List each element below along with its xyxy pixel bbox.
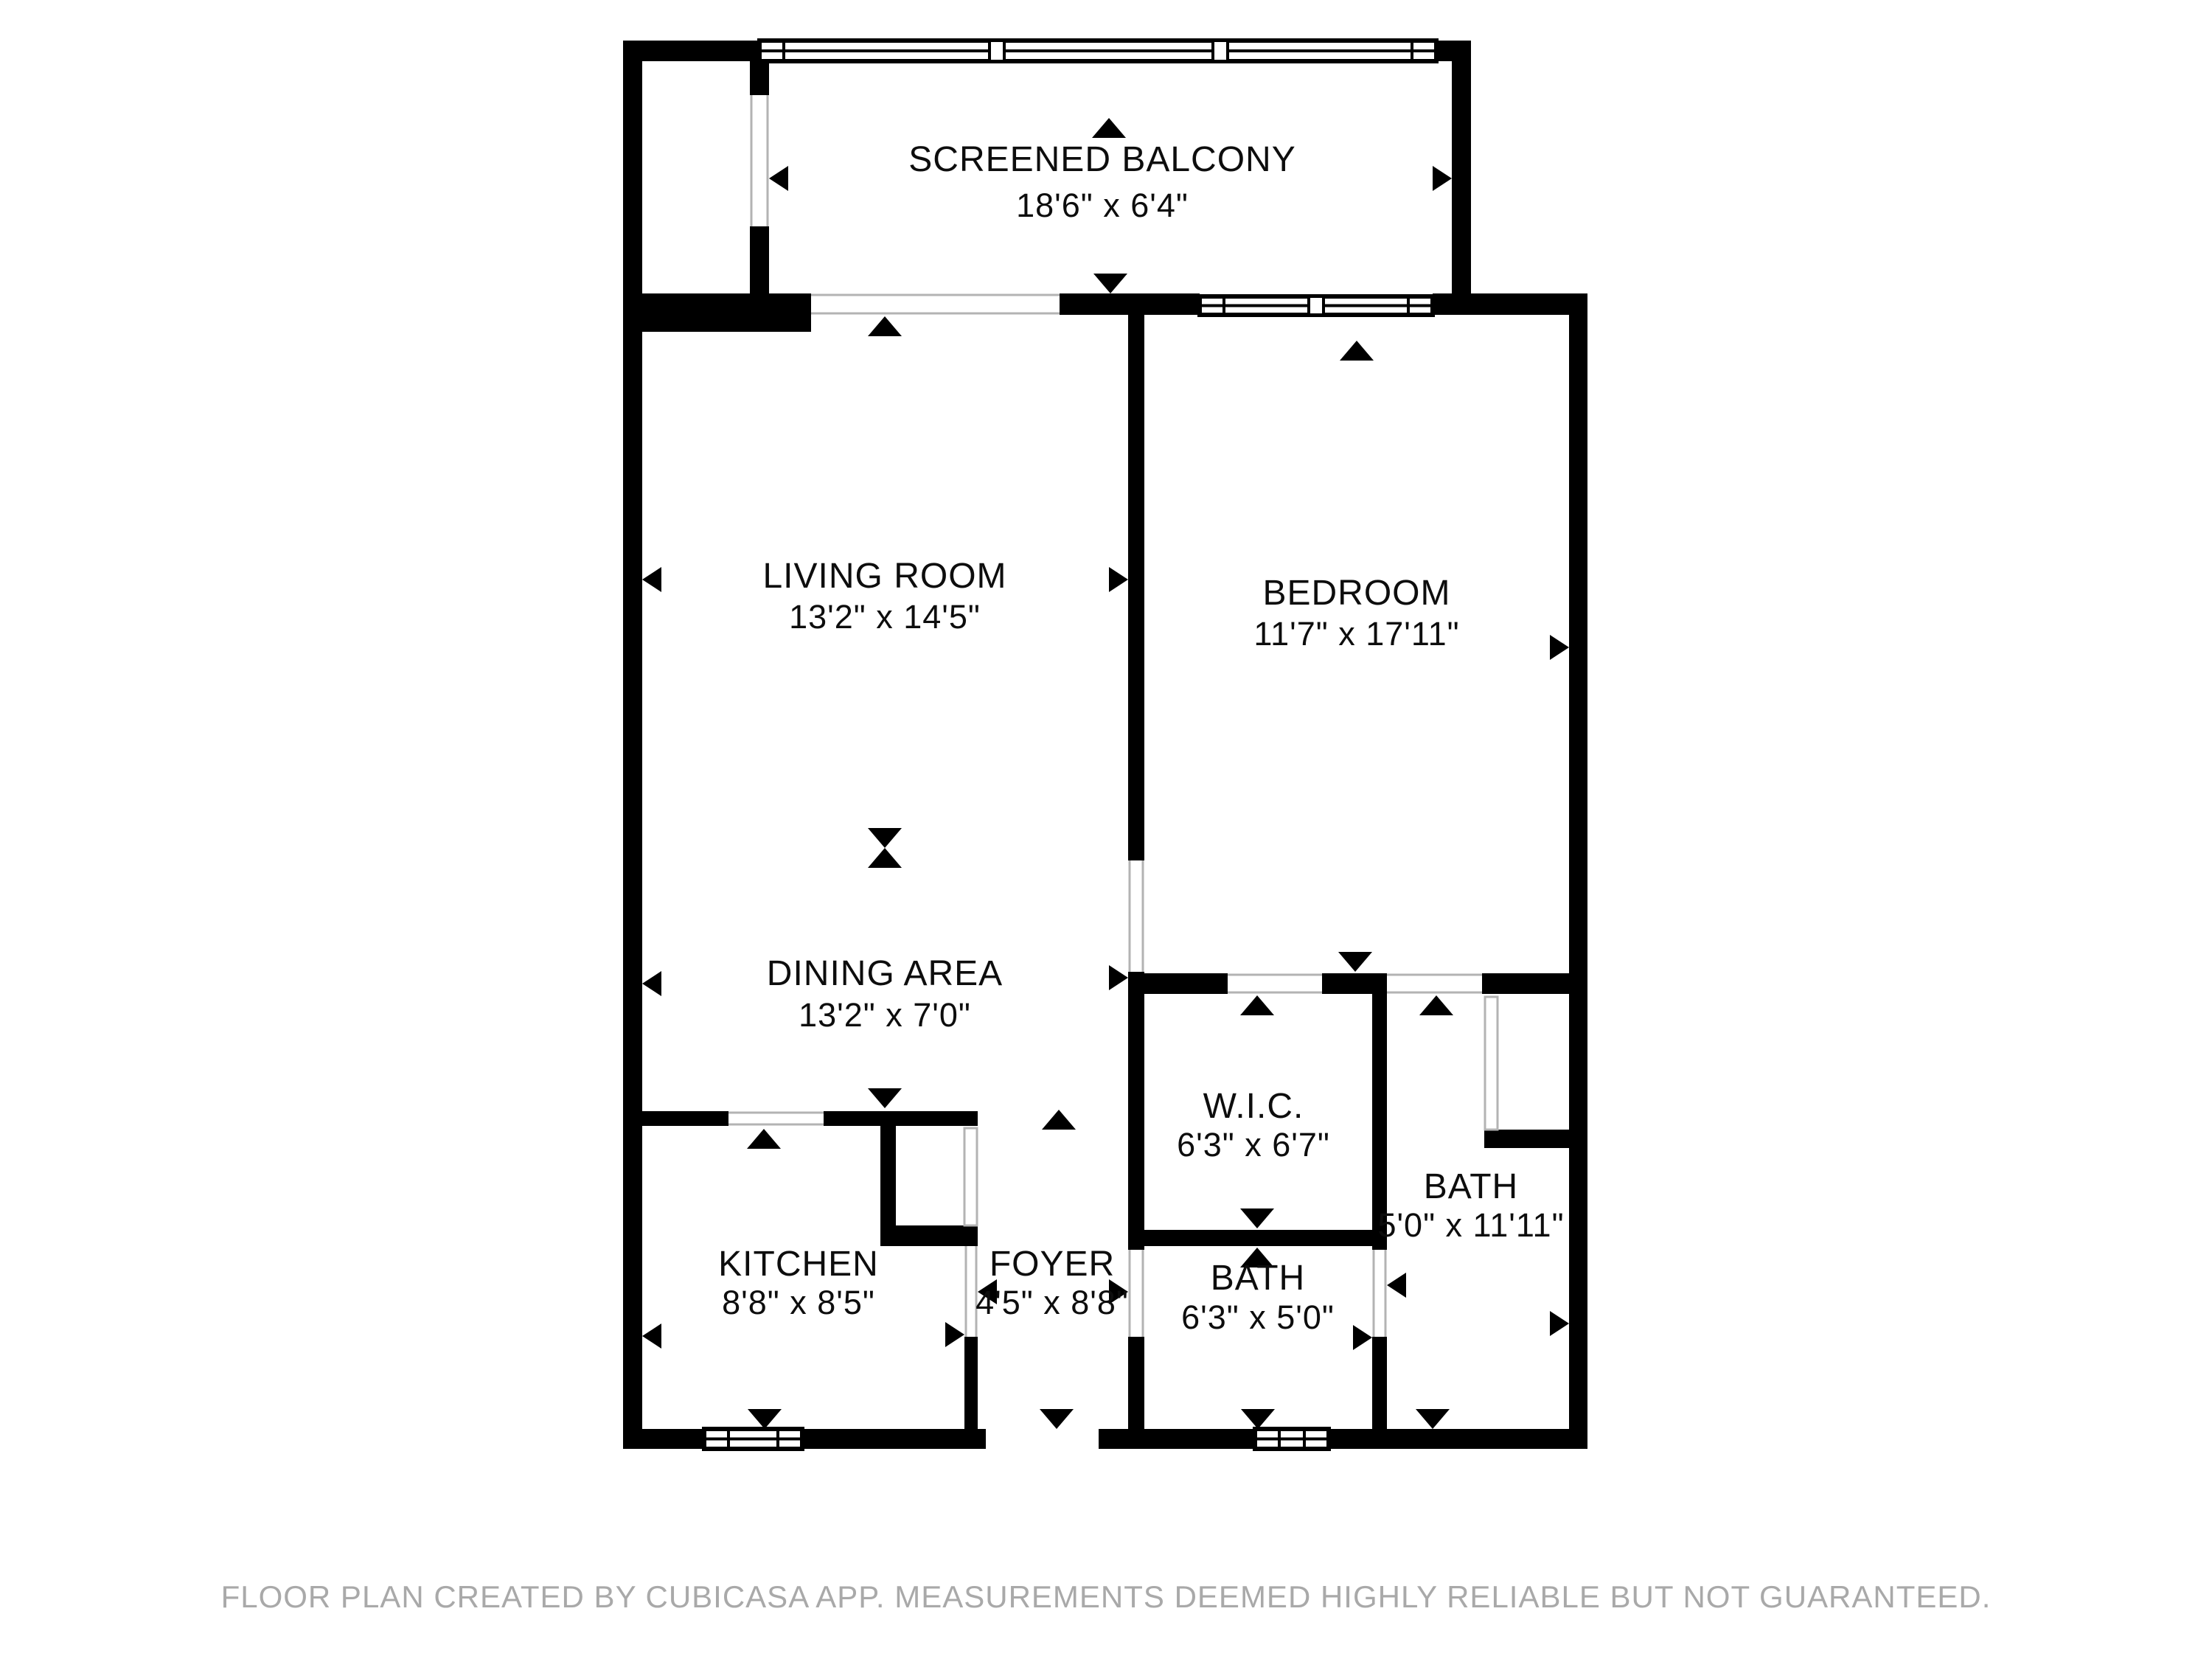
down-arrow-marker <box>748 1409 782 1429</box>
left-arrow-marker <box>642 1324 661 1349</box>
right-arrow-marker <box>1109 965 1128 990</box>
window-mullion <box>1309 296 1324 315</box>
wall-segment <box>1482 973 1569 994</box>
wall-segment <box>1452 41 1471 296</box>
wall-segment <box>1128 1230 1387 1246</box>
wall-segment <box>1569 293 1587 1449</box>
room-label-bedroom: BEDROOM <box>1262 574 1450 613</box>
wall-segment <box>1128 1337 1144 1429</box>
room-dims-foyer: 4'5" x 8'8" <box>975 1284 1129 1321</box>
room-label-wic: W.I.C. <box>1203 1087 1304 1126</box>
down-arrow-marker <box>1240 1208 1274 1228</box>
right-arrow-marker <box>1353 1325 1372 1350</box>
room-label-group-bath-small: BATH6'3" x 5'0" <box>1181 1259 1335 1336</box>
wall-segment <box>623 293 811 332</box>
up-arrow-marker <box>1092 118 1126 138</box>
room-dims-bath-long: 5'0" x 11'11" <box>1377 1206 1564 1244</box>
room-dims-kitchen: 8'8" x 8'5" <box>722 1284 875 1321</box>
room-label-screened-balcony: SCREENED BALCONY <box>908 140 1295 179</box>
left-arrow-marker <box>642 567 661 592</box>
wall-segment <box>1433 293 1587 315</box>
door-panel <box>1485 997 1498 1130</box>
wall-segment <box>1099 1429 1255 1449</box>
room-label-group-foyer: FOYER4'5" x 8'8" <box>975 1245 1129 1321</box>
right-arrow-marker <box>1550 635 1569 660</box>
room-label-group-bedroom: BEDROOM11'7" x 17'11" <box>1253 574 1459 653</box>
room-dims-bath-small: 6'3" x 5'0" <box>1181 1298 1335 1336</box>
room-dims-living-room: 13'2" x 14'5" <box>789 598 981 636</box>
down-arrow-marker <box>868 828 902 848</box>
down-arrow-marker <box>1241 1409 1275 1429</box>
room-label-group-wic: W.I.C.6'3" x 6'7" <box>1177 1087 1330 1164</box>
room-label-group-screened-balcony: SCREENED BALCONY18'6" x 6'4" <box>908 140 1295 224</box>
right-arrow-marker <box>1109 567 1128 592</box>
room-dims-dining-area: 13'2" x 7'0" <box>799 996 971 1034</box>
wall-segment <box>880 1225 978 1246</box>
down-arrow-marker <box>1416 1409 1450 1429</box>
up-arrow-marker <box>1240 995 1274 1015</box>
right-arrow-marker <box>1550 1311 1569 1336</box>
left-arrow-marker <box>1387 1273 1406 1298</box>
wall-segment <box>623 41 759 61</box>
right-arrow-marker <box>1433 166 1452 191</box>
room-dims-screened-balcony: 18'6" x 6'4" <box>1016 187 1189 224</box>
down-arrow-marker <box>1338 952 1372 972</box>
wall-segment <box>1128 293 1144 860</box>
up-arrow-marker <box>1419 995 1453 1015</box>
wall-segment <box>964 1337 978 1429</box>
room-label-group-kitchen: KITCHEN8'8" x 8'5" <box>718 1245 879 1321</box>
room-dims-bedroom: 11'7" x 17'11" <box>1253 615 1459 653</box>
left-arrow-marker <box>642 971 661 996</box>
wall-segment <box>802 1429 986 1449</box>
window-mullion <box>1213 41 1228 61</box>
wall-segment <box>623 41 642 1449</box>
floor-plan-page: SCREENED BALCONY18'6" x 6'4"LIVING ROOM1… <box>0 0 2212 1659</box>
floor-plan-canvas: SCREENED BALCONY18'6" x 6'4"LIVING ROOM1… <box>0 0 2212 1659</box>
right-arrow-marker <box>945 1322 964 1347</box>
wall-segment <box>750 226 769 295</box>
room-label-living-room: LIVING ROOM <box>762 557 1006 596</box>
room-label-group-bath-long: BATH5'0" x 11'11" <box>1377 1167 1564 1244</box>
room-label-foyer: FOYER <box>990 1245 1115 1284</box>
room-label-group-dining-area: DINING AREA13'2" x 7'0" <box>767 954 1003 1034</box>
room-label-bath-long: BATH <box>1424 1167 1518 1206</box>
disclaimer-footer: FLOOR PLAN CREATED BY CUBICASA APP. MEAS… <box>221 1579 1992 1614</box>
window-mullion <box>990 41 1004 61</box>
up-arrow-marker <box>868 316 902 336</box>
wall-segment <box>642 1111 728 1126</box>
down-arrow-marker <box>1093 274 1127 293</box>
room-label-bath-small: BATH <box>1211 1259 1305 1298</box>
wall-segment <box>1372 1337 1387 1429</box>
wall-segment <box>623 1429 704 1449</box>
up-arrow-marker <box>1042 1110 1076 1130</box>
room-label-kitchen: KITCHEN <box>718 1245 879 1284</box>
door-panel <box>964 1128 977 1225</box>
up-arrow-marker <box>747 1129 781 1149</box>
wall-segment <box>1128 972 1144 1250</box>
left-arrow-marker <box>769 166 788 191</box>
room-label-dining-area: DINING AREA <box>767 954 1003 993</box>
room-dims-wic: 6'3" x 6'7" <box>1177 1126 1330 1164</box>
wall-segment <box>1329 1429 1587 1449</box>
wall-segment <box>750 61 769 95</box>
wall-segment <box>824 1111 978 1126</box>
room-label-group-living-room: LIVING ROOM13'2" x 14'5" <box>762 557 1006 636</box>
up-arrow-marker <box>1340 341 1374 361</box>
down-arrow-marker <box>1040 1409 1074 1429</box>
wall-segment <box>1484 1130 1569 1148</box>
down-arrow-marker <box>868 1088 902 1108</box>
up-arrow-marker <box>868 848 902 868</box>
wall-segment <box>1128 973 1228 994</box>
